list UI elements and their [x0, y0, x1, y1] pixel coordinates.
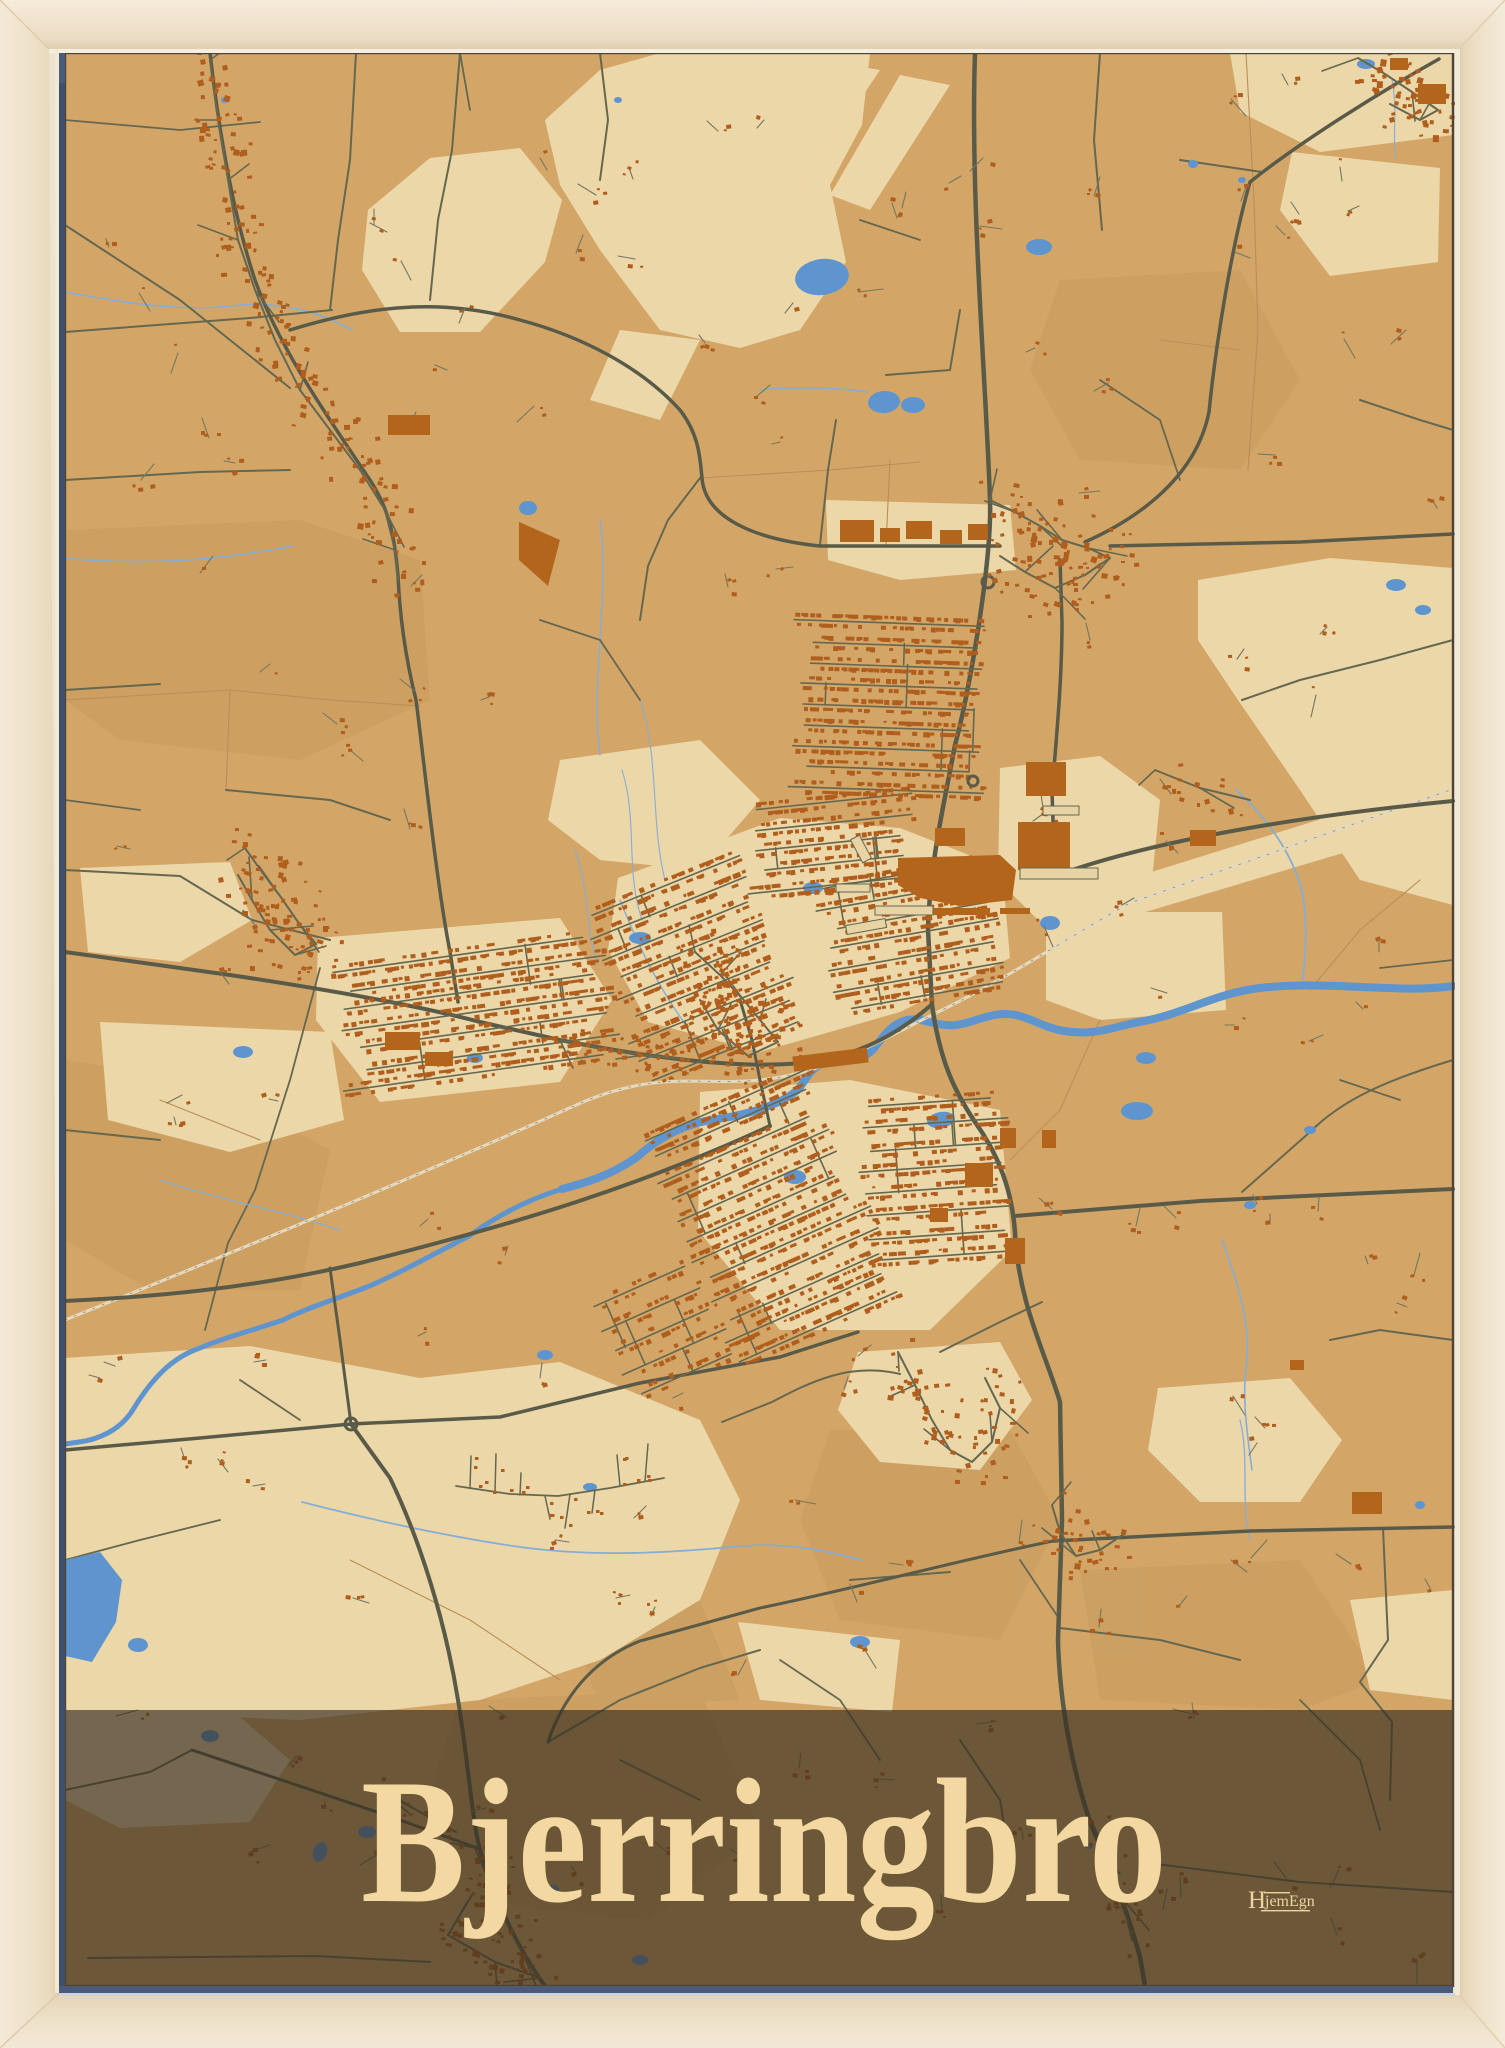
svg-text:jemEgn: jemEgn	[1264, 1893, 1315, 1910]
svg-text:Bjerringbro: Bjerringbro	[361, 1742, 1167, 1940]
svg-text:H: H	[1248, 1887, 1266, 1914]
